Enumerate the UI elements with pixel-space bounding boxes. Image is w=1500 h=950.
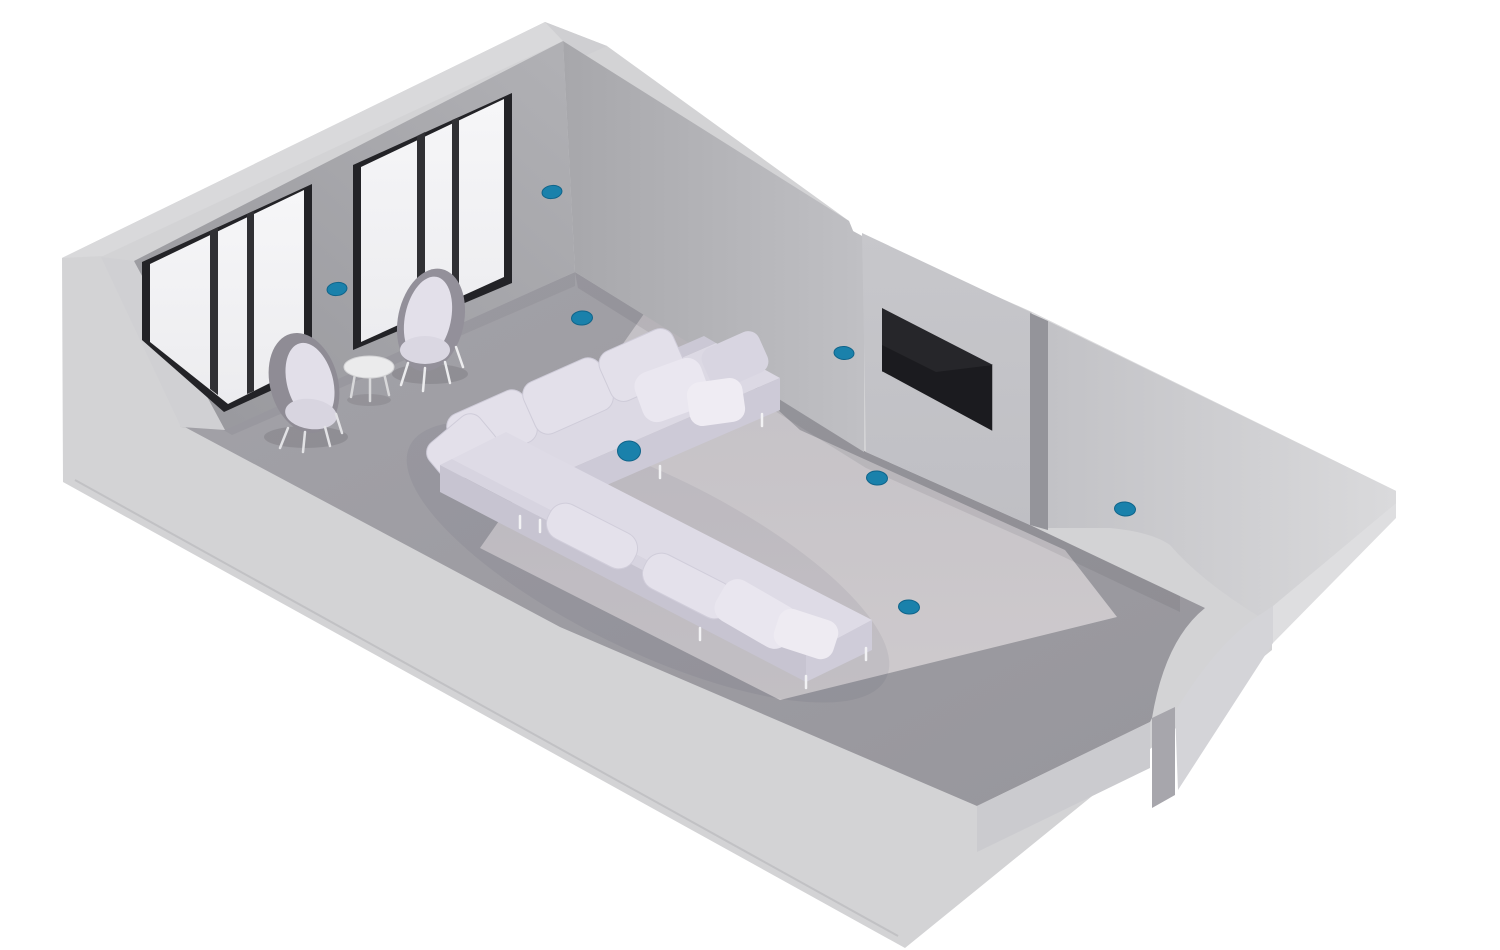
chair-seat-cushion: [400, 336, 450, 364]
doorway-floor: [1152, 707, 1175, 808]
sofa-pillow: [685, 376, 747, 427]
sensor-dot-sofa-seat[interactable]: [618, 441, 641, 461]
window-mullion: [452, 117, 459, 301]
table-top: [344, 356, 394, 378]
window-mullion: [247, 211, 254, 394]
isometric-room-scene: [0, 0, 1500, 950]
window-mullion: [210, 227, 218, 395]
tv-wall-side: [1030, 313, 1048, 530]
room-structure: [62, 22, 1396, 948]
room-illustration: [0, 0, 1500, 950]
